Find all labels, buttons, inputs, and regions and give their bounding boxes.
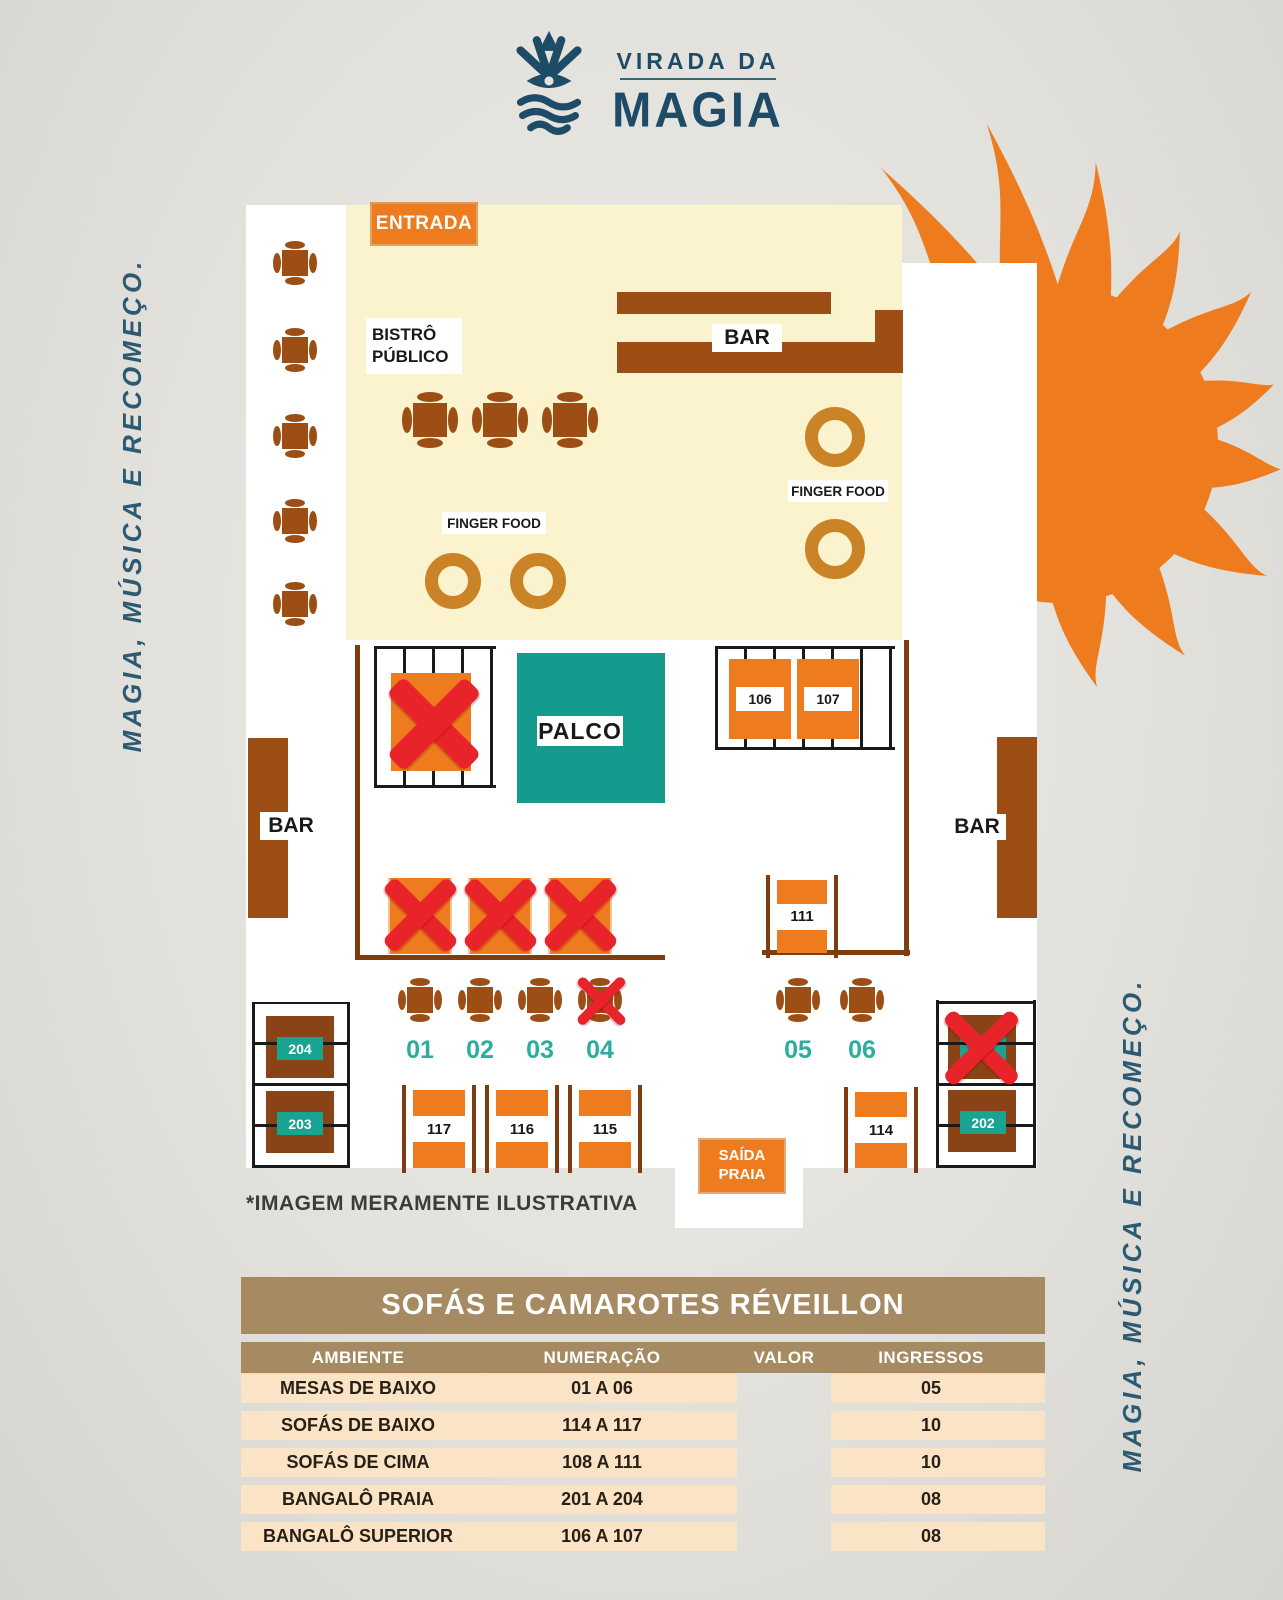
entrance-badge: ENTRADA <box>372 204 476 244</box>
cell-ambiente: SOFÁS DE CIMA <box>241 1448 475 1477</box>
unavailable-x-icon <box>938 1004 1026 1092</box>
bistro-table <box>273 328 317 372</box>
table-03-number: 03 <box>520 1036 560 1065</box>
upper-sofa-111-label: 111 <box>777 904 827 930</box>
cell-ambiente: MESAS DE BAIXO <box>241 1374 475 1403</box>
lower-sofa-114-label: 114 <box>855 1117 907 1143</box>
pricing-row: SOFÁS DE CIMA 108 A 111 10 <box>241 1448 1045 1477</box>
pricing-row: BANGALÔ PRAIA 201 A 204 08 <box>241 1485 1045 1514</box>
cell-ingressos: 05 <box>831 1374 1031 1403</box>
cell-numeracao: 201 A 204 <box>482 1485 722 1514</box>
bistro-table <box>273 241 317 285</box>
unavailable-x-icon <box>383 658 485 790</box>
cell-ingressos: 08 <box>831 1485 1031 1514</box>
trellis-grid <box>252 1002 350 1168</box>
cell-ingressos: 10 <box>831 1411 1031 1440</box>
cell-ambiente: SOFÁS DE BAIXO <box>241 1411 475 1440</box>
unavailable-x-icon <box>572 972 630 1030</box>
lower-sofa-117-label: 117 <box>413 1116 465 1142</box>
lower-sofa-115: 115 <box>579 1090 631 1168</box>
wall <box>904 640 909 956</box>
cell-ambiente: BANGALÔ SUPERIOR <box>241 1522 475 1551</box>
wall <box>355 645 360 960</box>
column-header-ingressos: INGRESSOS <box>811 1342 1051 1373</box>
cell-numeracao: 114 A 117 <box>482 1411 722 1440</box>
lower-sofa-114: 114 <box>855 1092 907 1168</box>
lower-sofa-117: 117 <box>413 1090 465 1168</box>
pricing-table-title: SOFÁS E CAMAROTES RÉVEILLON <box>241 1277 1045 1334</box>
bistro-table <box>542 392 598 448</box>
table-02-number: 02 <box>460 1036 500 1065</box>
cell-ingressos: 08 <box>831 1522 1031 1551</box>
column-header-ambiente: AMBIENTE <box>241 1342 475 1373</box>
lower-sofa-115-label: 115 <box>579 1116 631 1142</box>
unavailable-x-icon <box>458 864 542 966</box>
bangalo-superior-106-label: 106 <box>736 687 784 711</box>
finger-food-table <box>805 519 865 579</box>
pricing-row: MESAS DE BAIXO 01 A 06 05 <box>241 1374 1045 1403</box>
bangalo-praia-204-label: 204 <box>277 1037 323 1060</box>
bistro-table <box>402 392 458 448</box>
bangalo-superior-107-label: 107 <box>804 687 852 711</box>
bistro-table <box>472 392 528 448</box>
cell-numeracao: 106 A 107 <box>482 1522 722 1551</box>
bistro-table <box>273 499 317 543</box>
finger-food-table <box>425 553 481 609</box>
bar-left-label: BAR <box>260 812 322 840</box>
pricing-row: SOFÁS DE BAIXO 114 A 117 10 <box>241 1411 1045 1440</box>
upper-sofa-111: 111 <box>777 880 827 953</box>
finger-food-right-label: FINGER FOOD <box>788 480 888 502</box>
finger-food-table <box>510 553 566 609</box>
bar-right-label: BAR <box>948 814 1006 840</box>
bangalo-praia-202-label: 202 <box>960 1111 1006 1134</box>
floor-table-05 <box>776 978 820 1022</box>
lower-sofa-116-label: 116 <box>496 1116 548 1142</box>
floor-table-03 <box>518 978 562 1022</box>
bar-top-label: BAR <box>712 324 782 352</box>
bistro-publico-label: BISTRÔ PÚBLICO <box>366 318 462 374</box>
floor-table-02 <box>458 978 502 1022</box>
bangalo-praia-203-label: 203 <box>277 1112 323 1135</box>
stage-label: PALCO <box>537 716 623 746</box>
bar-counter-top <box>875 310 903 373</box>
virada-da-magia-logo-icon <box>497 28 601 140</box>
bistro-table <box>273 414 317 458</box>
floor-table-01 <box>398 978 442 1022</box>
cell-numeracao: 108 A 111 <box>482 1448 722 1477</box>
beach-exit-badge: SAÍDA PRAIA <box>700 1140 784 1192</box>
table-05-number: 05 <box>778 1036 818 1065</box>
event-map-poster: VIRADA DA MAGIA MAGIA, MÚSICA E RECOMEÇO… <box>0 0 1283 1600</box>
table-04-number: 04 <box>580 1036 620 1065</box>
bar-counter-top <box>617 292 831 314</box>
table-06-number: 06 <box>842 1036 882 1065</box>
bistro-table <box>273 582 317 626</box>
floor-table-06 <box>840 978 884 1022</box>
disclaimer-text: *IMAGEM MERAMENTE ILUSTRATIVA <box>246 1192 706 1218</box>
unavailable-x-icon <box>538 864 622 966</box>
cell-ambiente: BANGALÔ PRAIA <box>241 1485 475 1514</box>
pricing-row: BANGALÔ SUPERIOR 106 A 107 08 <box>241 1522 1045 1551</box>
finger-food-table <box>805 407 865 467</box>
logo-text-top: VIRADA DA <box>612 48 784 74</box>
cell-numeracao: 01 A 06 <box>482 1374 722 1403</box>
logo-divider <box>620 78 776 80</box>
table-01-number: 01 <box>400 1036 440 1065</box>
column-header-numeracao: NUMERAÇÃO <box>482 1342 722 1373</box>
finger-food-left-label: FINGER FOOD <box>442 512 546 534</box>
pricing-table-header: AMBIENTE NUMERAÇÃO VALOR INGRESSOS <box>241 1342 1045 1373</box>
slogan-right: MAGIA, MÚSICA E RECOMEÇO. <box>1117 875 1167 1575</box>
logo-text-magia: MAGIA <box>607 81 789 138</box>
lower-sofa-116: 116 <box>496 1090 548 1168</box>
cell-ingressos: 10 <box>831 1448 1031 1477</box>
unavailable-x-icon <box>378 864 462 966</box>
slogan-left: MAGIA, MÚSICA E RECOMEÇO. <box>117 205 167 805</box>
